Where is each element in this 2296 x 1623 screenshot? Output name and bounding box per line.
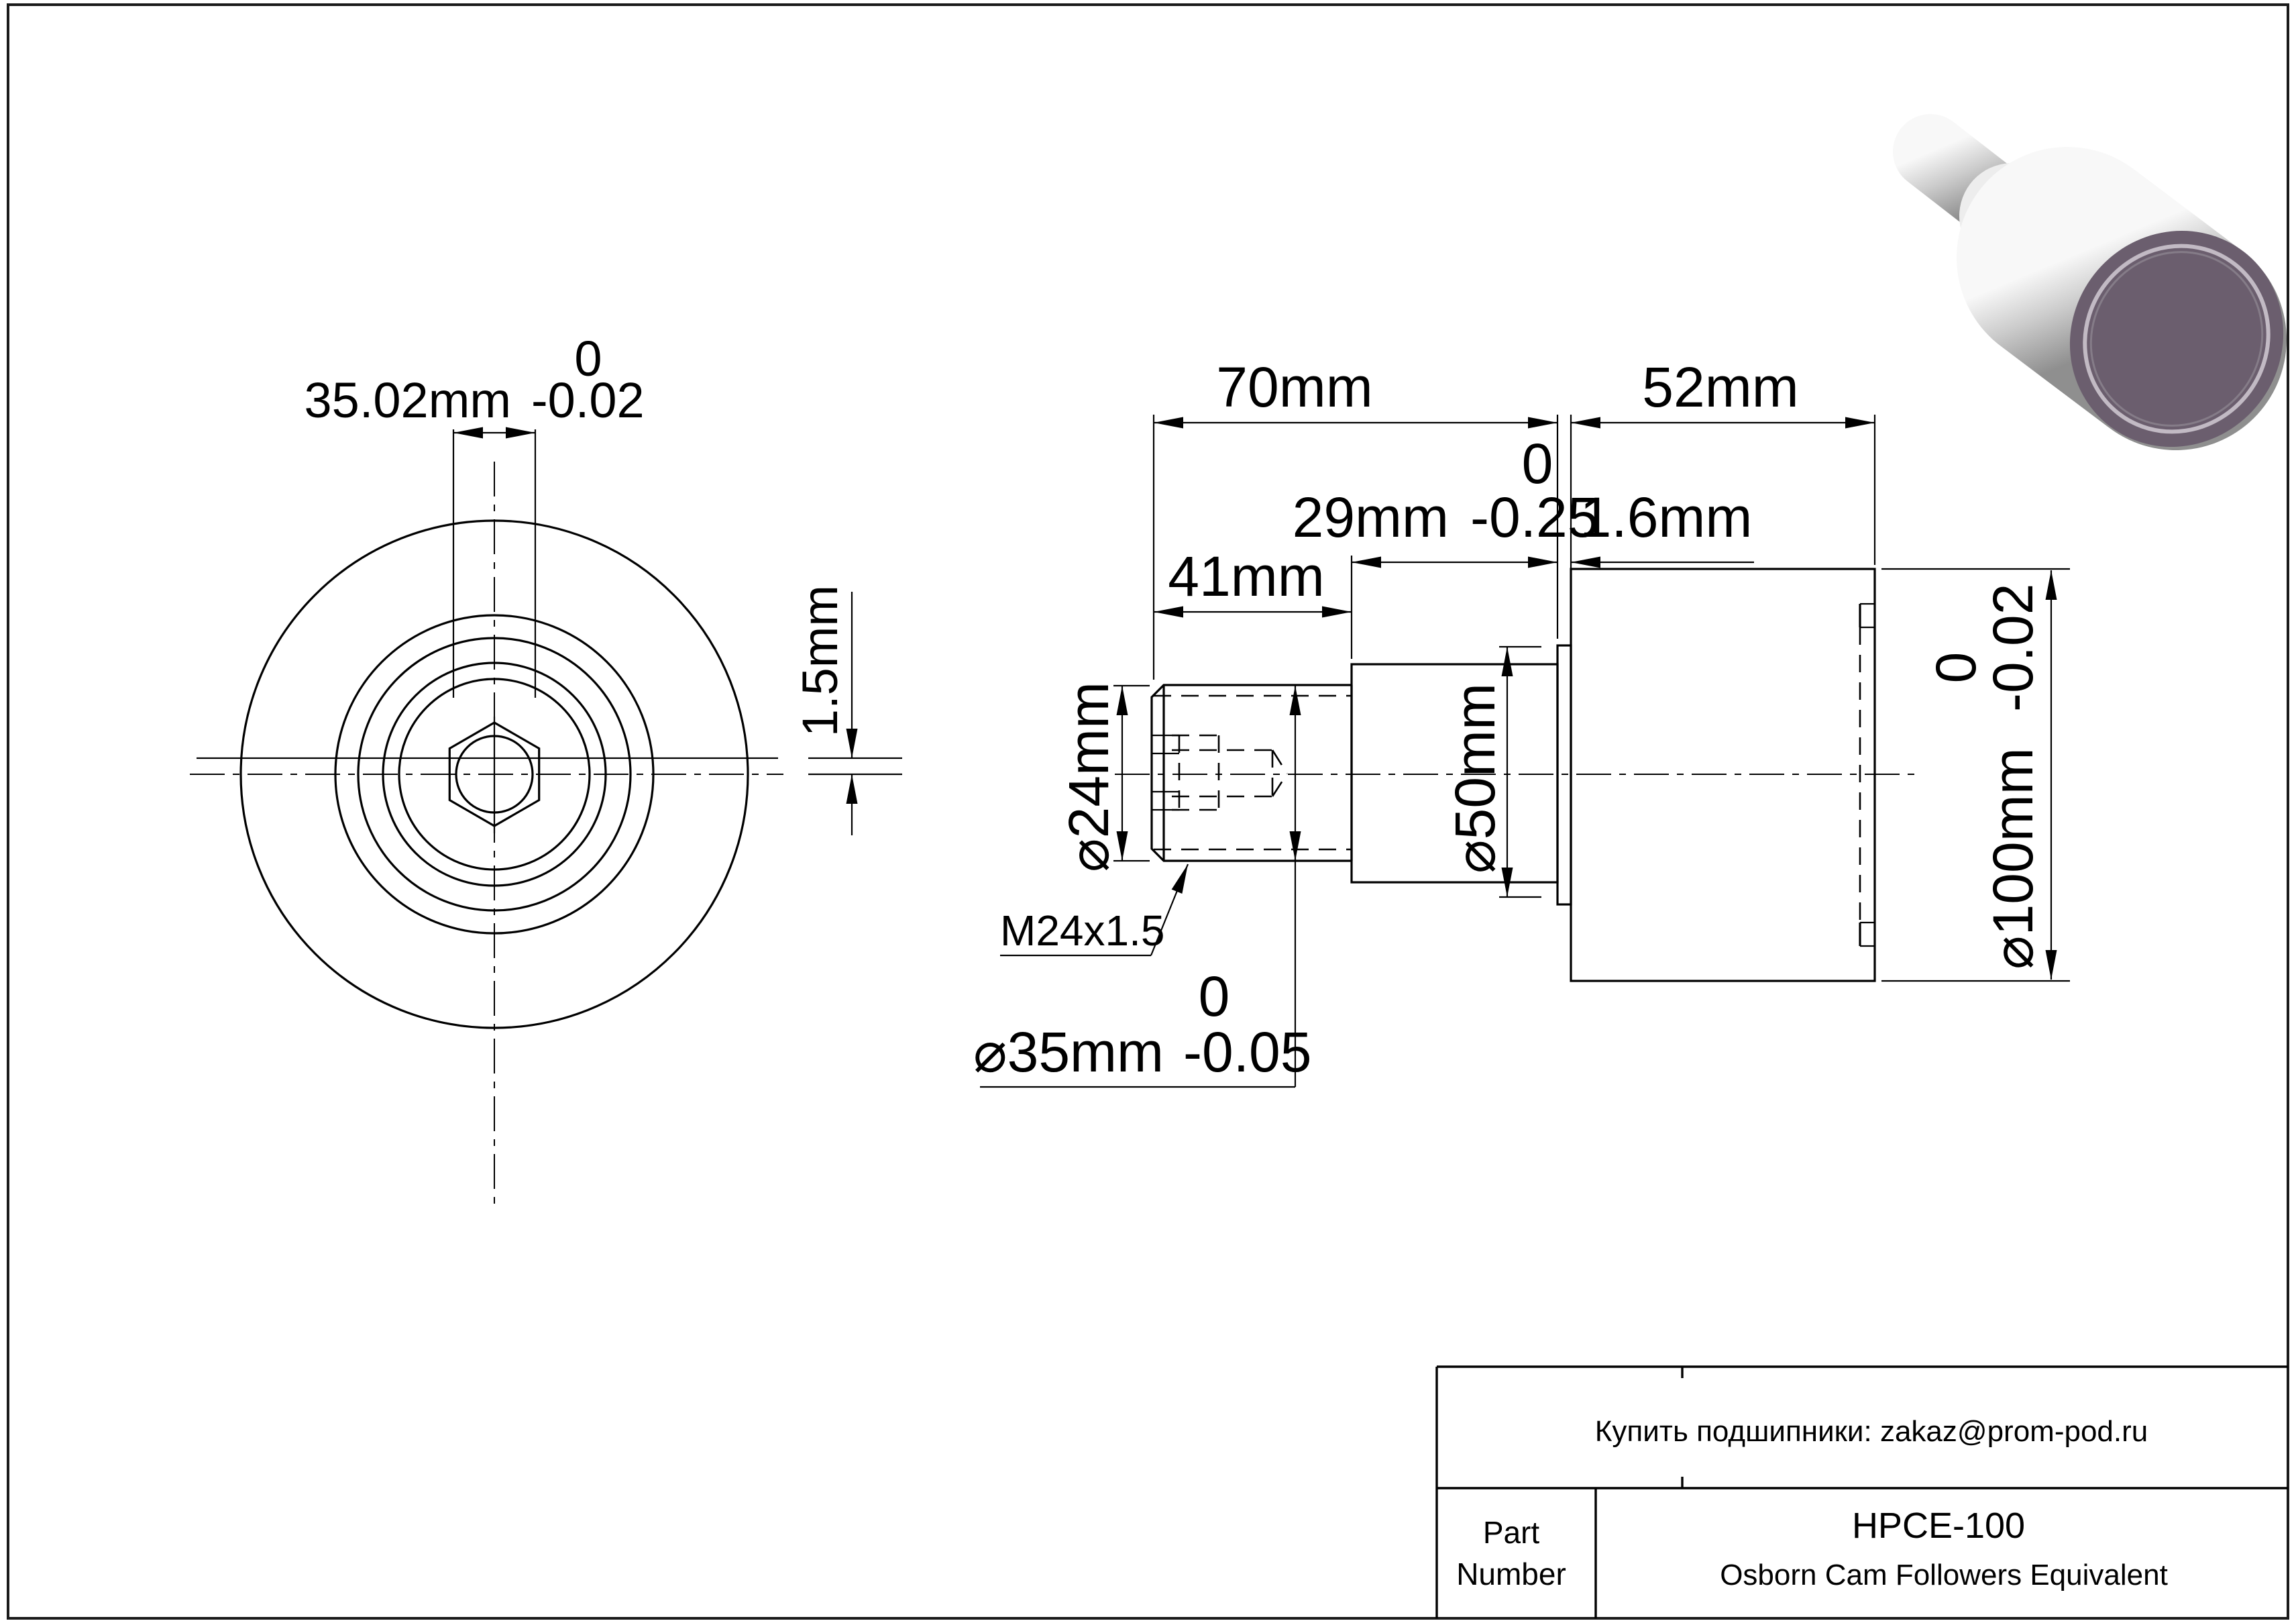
dim-flange-dia-value: ⌀50mm — [1443, 683, 1507, 874]
dim-thread-length-value: 41mm — [1168, 545, 1324, 608]
dim-flange-width-tol-upper: 0 — [1522, 432, 1553, 495]
part-number-value: HPCE-100 — [1852, 1506, 2025, 1546]
dim-front-width: 35.02mm -0.02 0 — [305, 331, 645, 698]
dim-thread-minor-value: ⌀24mm — [1057, 682, 1120, 872]
dim-stud-dia-tol-lower: -0.05 — [1183, 1020, 1311, 1084]
thread-spec-callout: M24x1.5 — [1000, 864, 1188, 955]
dim-washer-thickness: 1.6mm — [1571, 486, 1754, 562]
tapped-hole-hidden — [1152, 735, 1287, 810]
dim-roller-dia-tol-upper: 0 — [1924, 652, 1987, 684]
stud-thread-hidden-lines — [1154, 696, 1352, 849]
dim-stud-dia-value: ⌀35mm — [973, 1020, 1164, 1084]
part-number-label-line1: Part — [1483, 1515, 1540, 1550]
drawing-sheet: 35.02mm -0.02 0 1.5mm — [0, 0, 2296, 1623]
dim-flange-dia: ⌀50mm — [1443, 647, 1541, 897]
dim-thread-length: 41mm — [1154, 545, 1352, 612]
dim-stud-dia-tol-upper: 0 — [1199, 965, 1230, 1028]
dim-front-offset-value: 1.5mm — [792, 585, 848, 737]
dim-roller-dia-tol-lower: -0.02 — [1981, 584, 2044, 712]
dim-total-length-value: 70mm — [1216, 356, 1372, 419]
sheet-border — [8, 5, 2288, 1618]
side-view: 70mm 52mm 29mm -0.25 0 1.6mm 41mm — [973, 356, 2070, 1087]
dim-roller-width-value: 52mm — [1642, 356, 1798, 419]
part-description: Osborn Cam Followers Equivalent — [1720, 1559, 2168, 1591]
front-view-centerlines — [190, 462, 783, 1210]
dim-roller-dia-value: ⌀100mm — [1981, 747, 2044, 970]
title-block: Купить подшипники: zakaz@prom-pod.ru Par… — [1437, 1367, 2288, 1618]
dim-stud-dia: ⌀35mm -0.05 0 — [973, 686, 1311, 1087]
dim-flange-width-value: 29mm — [1293, 486, 1449, 549]
dim-front-width-value: 35.02mm — [305, 372, 511, 428]
dim-thread-minor: ⌀24mm — [1057, 682, 1150, 872]
stud-outline — [1152, 685, 1352, 861]
drawing-canvas: 35.02mm -0.02 0 1.5mm — [0, 0, 2296, 1623]
part-3d-render — [1894, 112, 2296, 490]
thread-spec-label: M24x1.5 — [1000, 906, 1164, 955]
front-view: 35.02mm -0.02 0 1.5mm — [190, 331, 902, 1210]
dim-flange-width: 29mm -0.25 0 — [1293, 432, 1599, 659]
dim-front-offset: 1.5mm — [792, 585, 902, 835]
supplier-note: Купить подшипники: zakaz@prom-pod.ru — [1595, 1415, 2148, 1448]
dim-washer-thickness-value: 1.6mm — [1580, 486, 1753, 549]
dim-front-width-tol-upper: 0 — [574, 331, 602, 386]
svg-text:⌀100mm -0.02: ⌀100mm -0.02 — [1981, 584, 2044, 970]
part-number-label-line2: Number — [1456, 1557, 1566, 1591]
